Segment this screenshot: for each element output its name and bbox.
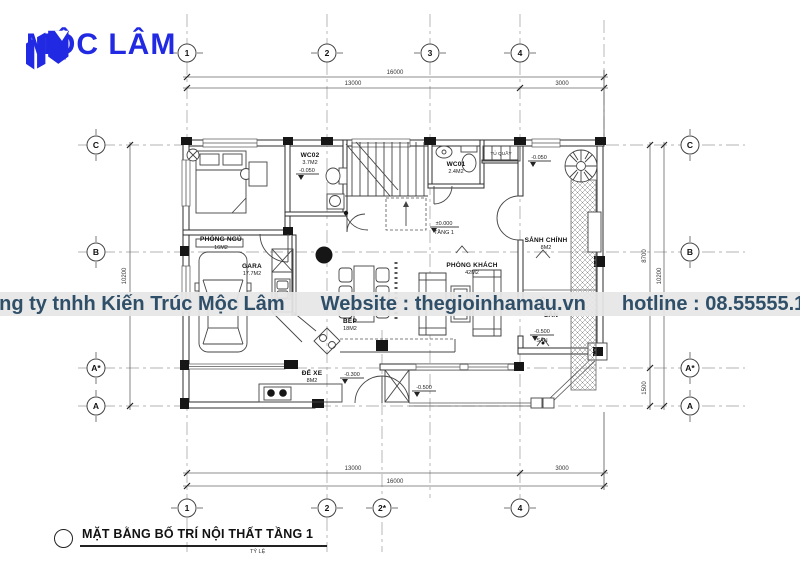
svg-text:A*: A* xyxy=(685,363,695,373)
svg-text:A*: A* xyxy=(91,363,101,373)
svg-text:1: 1 xyxy=(185,503,190,513)
watermark-website[interactable]: Website : thegioinhamau.vn xyxy=(321,293,586,316)
level-yard: -0.500SÂN xyxy=(530,329,554,344)
label-cabinet: TỦ QUẦY xyxy=(490,150,512,157)
axis-right-A: A xyxy=(681,390,699,422)
logo: MỘC LÂM xyxy=(26,28,176,62)
svg-text:2: 2 xyxy=(325,503,330,513)
axis-top-4: 4 xyxy=(504,44,536,62)
svg-text:2: 2 xyxy=(325,48,330,58)
bed xyxy=(196,151,246,213)
svg-text:4: 4 xyxy=(518,503,523,513)
axis-bottom-1: 1 xyxy=(171,499,203,517)
dim-top-seg2: 3000 xyxy=(555,81,569,87)
svg-text:1: 1 xyxy=(185,48,190,58)
svg-text:4: 4 xyxy=(518,48,523,58)
axis-top-2: 2 xyxy=(311,44,343,62)
svg-text:-0.050: -0.050 xyxy=(531,155,547,161)
watermark-band: Công ty tnhh Kiến Trúc Mộc Lâm Website :… xyxy=(0,292,800,316)
dim-bottom-seg2: 3000 xyxy=(555,466,569,472)
dim-left-total: 10200 xyxy=(122,267,128,284)
axis-bottom-4: 4 xyxy=(504,499,536,517)
axis-bottom-2s: 2* xyxy=(366,499,398,517)
title-block: MẶT BẰNG BỐ TRÍ NỘI THẤT TẦNG 1 xyxy=(54,527,327,548)
tree-icon xyxy=(565,150,597,182)
svg-text:16M2: 16M2 xyxy=(214,245,228,251)
svg-text:18M2: 18M2 xyxy=(343,326,357,332)
level-hall: -0.050 xyxy=(528,155,551,167)
svg-text:WC02: WC02 xyxy=(301,152,320,159)
svg-text:SẢNH CHÍNH: SẢNH CHÍNH xyxy=(525,235,568,244)
svg-text:TỦ QUẦY: TỦ QUẦY xyxy=(490,150,512,157)
axis-left-C: C xyxy=(87,129,105,161)
floor-plan-page: 16000 13000 3000 13000 3000 16000 10200 … xyxy=(0,0,800,566)
svg-text:A: A xyxy=(93,401,99,411)
drawing-title: MẶT BẰNG BỐ TRÍ NỘI THẤT TẦNG 1 xyxy=(80,527,327,547)
axis-right-B: B xyxy=(681,236,699,268)
stairs xyxy=(344,142,428,230)
level-entry: -0.500 xyxy=(412,385,436,397)
title-circle-icon xyxy=(54,529,73,548)
level-wc02: -0.050 xyxy=(296,168,319,180)
dim-right-seg2: 1500 xyxy=(642,381,648,395)
svg-text:8M2: 8M2 xyxy=(307,378,318,384)
svg-text:A: A xyxy=(687,401,693,411)
svg-text:-0.500: -0.500 xyxy=(416,385,432,391)
svg-text:PHÒNG KHÁCH: PHÒNG KHÁCH xyxy=(446,260,497,269)
svg-text:-0.500: -0.500 xyxy=(534,329,550,335)
svg-text:B: B xyxy=(687,247,693,257)
svg-text:C: C xyxy=(93,140,99,150)
axis-top-3: 3 xyxy=(414,44,446,62)
dim-top-seg1: 13000 xyxy=(345,81,362,87)
axis-left-A: A xyxy=(87,390,105,422)
ceiling-fan-icon xyxy=(187,149,199,161)
svg-text:-0.300: -0.300 xyxy=(344,372,360,378)
dim-bottom-seg1: 13000 xyxy=(345,466,362,472)
svg-text:±0.000: ±0.000 xyxy=(436,221,453,227)
dim-top-total: 16000 xyxy=(387,70,404,76)
svg-text:GARA: GARA xyxy=(242,263,262,270)
svg-text:42M2: 42M2 xyxy=(465,270,479,276)
svg-text:2.4M2: 2.4M2 xyxy=(448,169,463,175)
svg-text:17.7M2: 17.7M2 xyxy=(243,271,261,277)
dim-right-total: 10200 xyxy=(657,267,663,284)
dim-right-seg1: 8700 xyxy=(642,249,648,263)
axis-left-B: B xyxy=(87,236,105,268)
watermark-company: Công ty tnhh Kiến Trúc Mộc Lâm xyxy=(0,293,285,316)
svg-text:ĐỂ XE: ĐỂ XE xyxy=(302,368,323,377)
svg-text:8M2: 8M2 xyxy=(541,245,552,251)
level-floor1: ±0.000TẦNG 1 xyxy=(430,221,459,236)
floor-plan-drawing: 16000 13000 3000 13000 3000 16000 10200 … xyxy=(0,0,800,566)
svg-text:3.7M2: 3.7M2 xyxy=(302,160,317,166)
axis-right-As: A* xyxy=(681,352,699,384)
svg-text:3: 3 xyxy=(428,48,433,58)
svg-text:-0.050: -0.050 xyxy=(299,168,315,174)
scale-label: TỶ LỆ xyxy=(250,549,265,555)
svg-text:TẦNG 1: TẦNG 1 xyxy=(434,229,454,236)
label-bedroom: PHÒNG NGỦ16M2 xyxy=(200,234,242,251)
svg-text:C: C xyxy=(687,140,693,150)
axis-markers: 1 2 3 4 1 2 2* 4 C B A* A C B A* A xyxy=(87,44,699,517)
label-kitchen: BẾP18M2 xyxy=(343,315,357,332)
level-bike: -0.300 xyxy=(340,372,364,384)
label-bike: ĐỂ XE8M2 xyxy=(302,368,323,384)
dim-bottom-total: 16000 xyxy=(387,479,404,485)
svg-text:PHÒNG NGỦ: PHÒNG NGỦ xyxy=(200,234,242,243)
grid-lines xyxy=(78,14,745,552)
svg-text:SÂN: SÂN xyxy=(536,337,547,344)
label-wc02: WC023.7M2 xyxy=(301,152,320,166)
axis-bottom-2: 2 xyxy=(311,499,343,517)
moc-lam-logo-icon xyxy=(26,28,74,74)
axis-left-As: A* xyxy=(87,352,105,384)
svg-text:B: B xyxy=(93,247,99,257)
label-hall: SẢNH CHÍNH8M2 xyxy=(525,235,568,251)
watermark-hotline: hotline : 08.55555.181 xyxy=(622,293,800,316)
axis-right-C: C xyxy=(681,129,699,161)
svg-text:WC01: WC01 xyxy=(447,161,466,168)
svg-text:2*: 2* xyxy=(378,503,387,513)
